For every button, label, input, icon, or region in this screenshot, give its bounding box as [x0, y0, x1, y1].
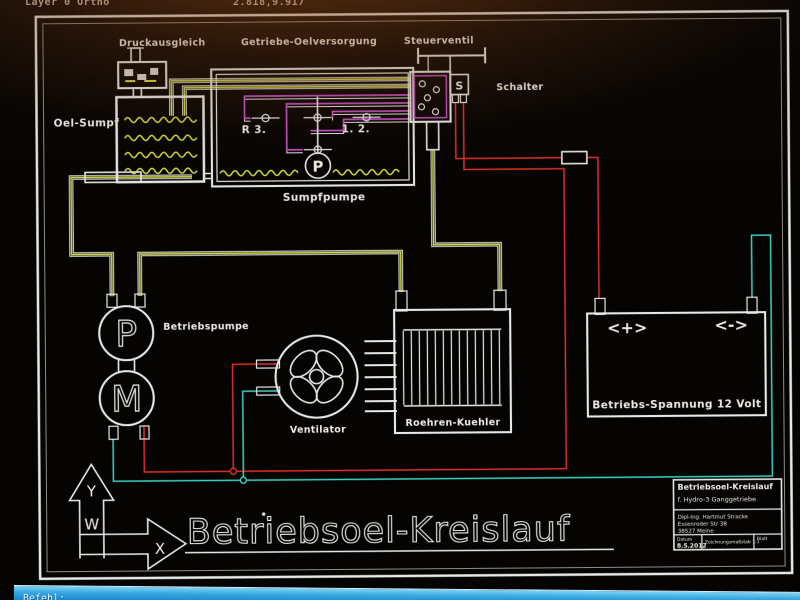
cad-point-marker	[262, 512, 266, 516]
pump-letter: P	[115, 314, 137, 355]
motor-letter: M	[111, 379, 142, 420]
drawing-title: Betriebsoel-Kreislauf	[185, 509, 614, 552]
title-block-title: Betriebsoel-Kreislauf	[677, 482, 773, 492]
switch-s-letter: S	[455, 79, 463, 92]
label-steuerventil: Steuerventil	[404, 35, 474, 47]
command-prompt[interactable]: Befehl:	[23, 590, 65, 600]
main-title-text: Betriebsoel-Kreislauf	[187, 510, 571, 553]
oil-sump-tank	[84, 96, 212, 182]
title-block-street: Essenroder Str 38	[678, 521, 728, 527]
axis-w-label: W	[84, 515, 99, 533]
label-battery-caption: Betriebs-Spannung 12 Volt	[592, 398, 761, 411]
cad-drawing-canvas[interactable]: P S	[0, 0, 800, 600]
label-valve-12: 1. 2.	[342, 123, 370, 135]
label-oel-sumpf: Oel-Sumpf	[54, 117, 120, 130]
fuse-symbol	[562, 152, 587, 164]
hydraulic-maze	[244, 95, 409, 153]
axis-y-label: Y	[86, 482, 97, 500]
label-roehren-kuehler: Roehren-Kuehler	[405, 417, 500, 429]
main-pump-symbol: P	[99, 294, 154, 371]
sump-pump-letter: P	[312, 158, 323, 176]
control-valve-assembly	[410, 47, 486, 150]
motor-symbol: M	[100, 371, 155, 439]
title-block-author: Dipl-Ing. Hartmut Stracke	[678, 514, 749, 521]
wiring-red	[141, 101, 600, 475]
title-block-sheet-label: Blatt	[757, 536, 768, 542]
title-block-city: 38527 Meine	[678, 529, 714, 535]
label-sumpfpumpe: Sumpfpumpe	[283, 191, 366, 204]
switch-s: S	[450, 74, 468, 102]
axis-x-label: X	[155, 540, 165, 558]
label-ventilator: Ventilator	[290, 424, 346, 435]
cad-screen: Layer 0 Ortho 2.818,9.917	[0, 0, 800, 600]
title-block-subtitle: f. Hydro-3 Ganggetriebe	[678, 495, 757, 504]
fan-symbol	[256, 335, 358, 418]
label-druckausgleich: Druckausgleich	[119, 38, 206, 50]
label-valve-r3: R 3.	[242, 124, 267, 136]
red-junction-node	[230, 468, 236, 474]
title-block-scale: Zeichnungsmaßstab 1:1	[705, 539, 760, 545]
battery-plus-terminal: <+>	[607, 318, 647, 337]
title-block: Betriebsoel-Kreislauf f. Hydro-3 Gangget…	[673, 479, 782, 550]
battery-symbol: <+> <-> Betriebs-Spannung 12 Volt	[587, 297, 766, 416]
label-getriebe-oelversorgung: Getriebe-Oelversorgung	[241, 36, 377, 48]
cyan-junction-node	[240, 477, 246, 483]
sump-pump-symbol: P	[305, 153, 330, 178]
air-flow-lines	[364, 341, 397, 411]
wiring-cyan	[112, 235, 773, 484]
pressure-equalizer-device	[118, 48, 166, 98]
label-betriebspumpe: Betriebspumpe	[163, 321, 249, 333]
tube-cooler: Roehren-Kuehler	[394, 290, 511, 433]
title-block-date-value: 8.5.2012	[677, 543, 707, 550]
oil-pipes	[70, 78, 500, 296]
label-schalter: Schalter	[496, 82, 543, 93]
battery-minus-terminal: <->	[714, 315, 748, 334]
ucs-axis-icon: Y W X	[69, 464, 186, 570]
